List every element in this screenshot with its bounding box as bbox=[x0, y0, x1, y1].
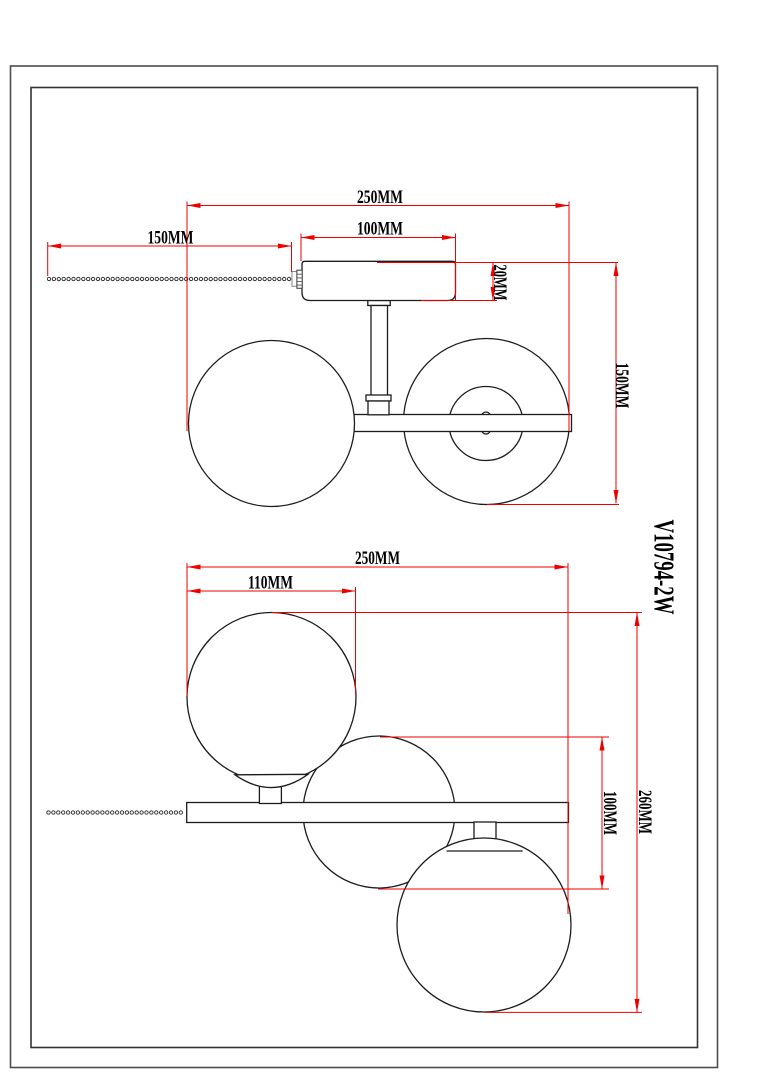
svg-text:110MM: 110MM bbox=[248, 573, 293, 594]
svg-text:150MM: 150MM bbox=[611, 363, 632, 409]
svg-text:150MM: 150MM bbox=[148, 228, 194, 249]
svg-text:V10794-2W: V10794-2W bbox=[648, 520, 679, 615]
svg-text:250MM: 250MM bbox=[355, 548, 400, 569]
svg-text:20MM: 20MM bbox=[489, 265, 510, 301]
svg-text:260MM: 260MM bbox=[634, 790, 655, 834]
svg-text:100MM: 100MM bbox=[357, 219, 403, 240]
svg-text:100MM: 100MM bbox=[599, 791, 620, 835]
svg-text:250MM: 250MM bbox=[357, 187, 403, 208]
